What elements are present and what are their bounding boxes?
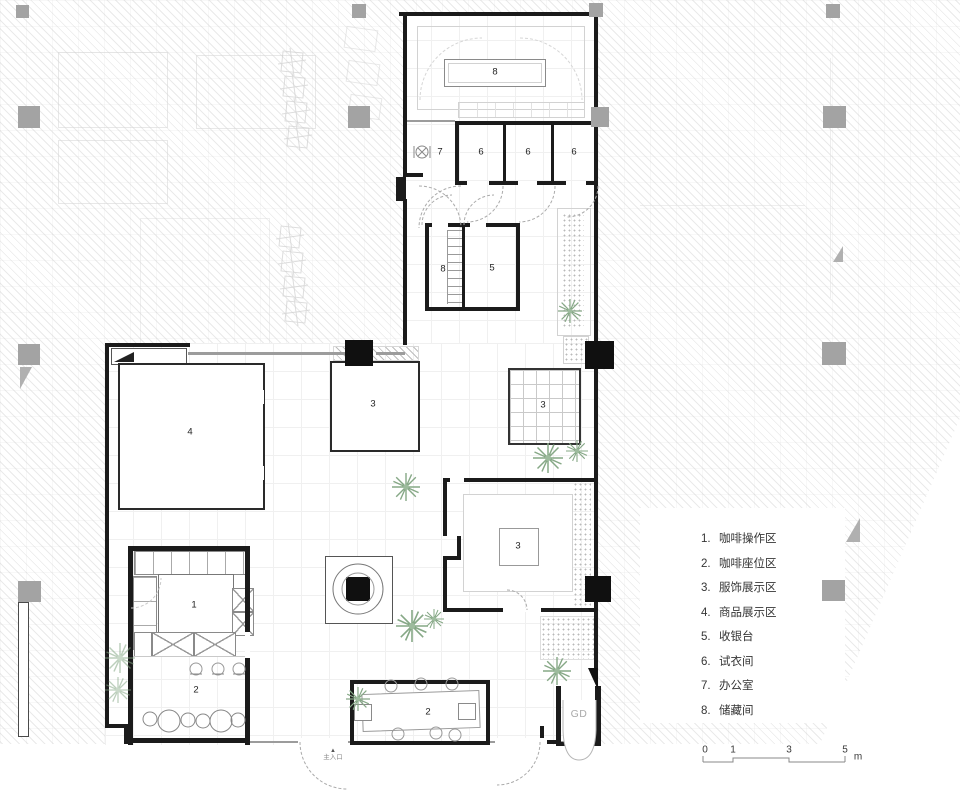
scale-tick-0: 0 [702, 745, 708, 756]
cafe-seating [143, 663, 245, 732]
feature-table-circles [333, 564, 383, 614]
room-label-6-2: 6 [525, 147, 530, 158]
drawing-overlay [0, 0, 960, 793]
room-label-6-1: 6 [478, 147, 483, 158]
entry-arrow [114, 352, 134, 362]
room-label-3-bottom: 3 [515, 541, 520, 552]
context-plus-squares [276, 48, 312, 326]
section-marker [20, 246, 860, 542]
scale-unit: m [854, 752, 862, 763]
room-label-2-left: 2 [193, 685, 198, 696]
floor-plan-canvas: 8 7 6 6 6 8 5 4 3 3 3 1 2 2 GD ▲ 主入口 1.咖… [0, 0, 960, 793]
room-label-8-mid: 8 [440, 264, 445, 275]
room-label-7: 7 [437, 147, 442, 158]
room-label-1: 1 [191, 600, 196, 611]
legend-item: 1.咖啡操作区 [701, 534, 777, 546]
legend-item: 7.办公室 [701, 681, 777, 693]
scale-tick-1: 1 [730, 745, 736, 756]
scale-bar-line [703, 756, 845, 762]
scale-tick-5: 5 [842, 745, 848, 756]
legend-item: 5.收银台 [701, 632, 777, 644]
room-label-4: 4 [187, 427, 192, 438]
room-label-2-bottom: 2 [425, 707, 430, 718]
legend-item: 6.试衣间 [701, 657, 777, 669]
legend-item: 3.服饰展示区 [701, 583, 777, 595]
legend-item: 2.咖啡座位区 [701, 559, 777, 571]
plants [105, 299, 588, 711]
gd-door-label: GD [571, 708, 588, 720]
room-label-3-left: 3 [370, 399, 375, 410]
main-entrance-label: ▲ 主入口 [310, 748, 356, 762]
office-equipment-icon [414, 146, 430, 158]
legend-item: 8.储藏间 [701, 706, 777, 718]
cafe-seating [385, 678, 461, 741]
legend: 1.咖啡操作区 2.咖啡座位区 3.服饰展示区 4.商品展示区 5.收银台 6.… [701, 534, 777, 717]
room-label-8-top: 8 [492, 67, 497, 78]
entrance-text: 主入口 [310, 754, 356, 762]
room-label-5: 5 [489, 263, 494, 274]
legend-item: 4.商品展示区 [701, 608, 777, 620]
room-label-6-3: 6 [571, 147, 576, 158]
scale-tick-3: 3 [786, 745, 792, 756]
wall-wedge [588, 668, 598, 690]
room-label-3-grid: 3 [540, 400, 545, 411]
